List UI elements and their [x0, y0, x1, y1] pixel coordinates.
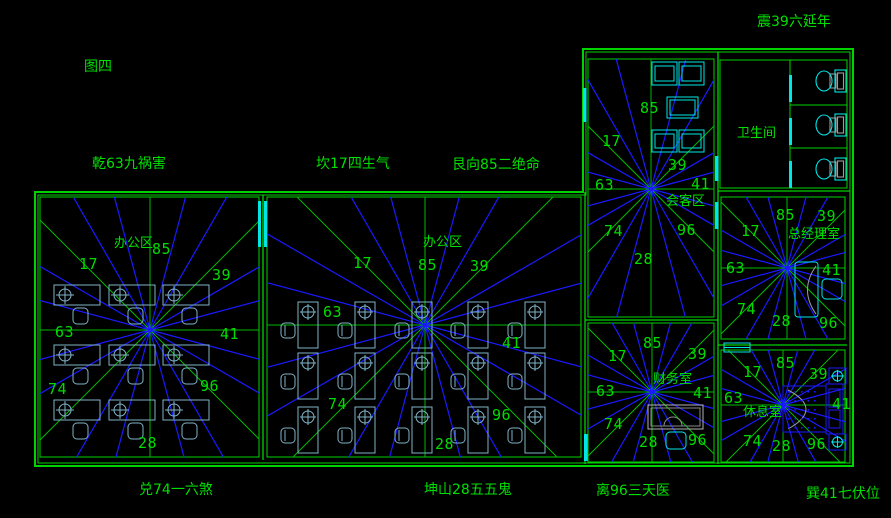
star-number: 63	[596, 384, 615, 399]
room-label: 办公区	[423, 236, 462, 249]
star-number: 96	[200, 379, 219, 394]
door-office-divider	[264, 201, 267, 247]
star-number: 74	[48, 382, 67, 397]
star-number: 28	[138, 436, 157, 451]
star-number: 85	[640, 101, 659, 116]
stall-door	[789, 75, 792, 102]
star-number: 85	[152, 242, 171, 257]
star-number: 39	[212, 268, 231, 283]
star-number: 96	[807, 437, 826, 452]
star-number: 17	[79, 257, 98, 272]
star-number: 41	[693, 386, 712, 401]
compass-label-zhen: 震39六延年	[757, 15, 831, 29]
room-label: 总经理室	[788, 228, 840, 241]
star-number: 17	[608, 349, 627, 364]
star-number: 41	[832, 397, 851, 412]
star-number: 85	[643, 336, 662, 351]
star-number: 74	[604, 224, 623, 239]
star-number: 28	[435, 437, 454, 452]
star-rays	[247, 0, 891, 518]
star-number: 74	[328, 397, 347, 412]
star-number: 63	[595, 178, 614, 193]
star-number: 63	[323, 305, 342, 320]
room-label: 财务室	[653, 373, 692, 386]
star-number: 85	[418, 258, 437, 273]
star-number: 17	[353, 256, 372, 271]
cad-floorplan-canvas: 图四 震39六延年 乾63九祸害 坎17四生气 艮向85二绝命 兑74一六煞 坤…	[0, 0, 891, 518]
star-number: 39	[688, 347, 707, 362]
stall-door	[789, 118, 792, 145]
star-number: 39	[470, 259, 489, 274]
door-meeting	[583, 88, 587, 122]
star-number: 28	[772, 439, 791, 454]
star-number: 41	[502, 336, 521, 351]
door-manager	[715, 202, 719, 229]
star-number: 39	[668, 158, 687, 173]
star-number: 28	[639, 435, 658, 450]
star-number: 63	[55, 325, 74, 340]
star-number: 41	[822, 263, 841, 278]
star-number: 96	[819, 316, 838, 331]
star-rays	[243, 0, 891, 518]
star-number: 39	[817, 209, 836, 224]
star-number: 85	[776, 208, 795, 223]
compass-label-dui: 兑74一六煞	[139, 483, 213, 497]
toilets	[789, 70, 846, 188]
sofa-set	[652, 62, 704, 152]
room-label: 休息室	[743, 406, 782, 419]
star-number: 39	[809, 367, 828, 382]
star-number: 74	[743, 434, 762, 449]
door-office-divider	[258, 201, 261, 247]
star-number: 96	[677, 223, 696, 238]
compass-label-li: 离96三天医	[596, 484, 670, 498]
star-number: 74	[604, 417, 623, 432]
compass-label-kun: 坤山28五五鬼	[424, 483, 512, 497]
star-number: 74	[737, 302, 756, 317]
star-number: 17	[741, 224, 760, 239]
nightstand	[829, 434, 846, 450]
star-number: 63	[724, 391, 743, 406]
star-number: 17	[602, 134, 621, 149]
star-number: 41	[220, 327, 239, 342]
door-meeting-bathroom	[715, 156, 719, 181]
star-number: 96	[688, 433, 707, 448]
star-number: 63	[726, 261, 745, 276]
star-number: 17	[743, 365, 762, 380]
room-label: 会客区	[666, 195, 705, 208]
star-number: 28	[772, 314, 791, 329]
room-label: 办公区	[114, 237, 153, 250]
star-number: 96	[492, 408, 511, 423]
star-number: 41	[691, 177, 710, 192]
room-label: 卫生间	[737, 127, 776, 140]
stall-door	[789, 161, 792, 188]
star-number: 85	[776, 356, 795, 371]
door-finance	[584, 434, 588, 461]
compass-label-kan: 坎17四生气	[316, 157, 390, 171]
compass-label-gen: 艮向85二绝命	[452, 158, 540, 172]
figure-label: 图四	[84, 60, 112, 74]
compass-label-qian: 乾63九祸害	[92, 157, 166, 171]
star-number: 28	[634, 252, 653, 267]
compass-label-xun: 巽41七伏位	[806, 487, 880, 501]
